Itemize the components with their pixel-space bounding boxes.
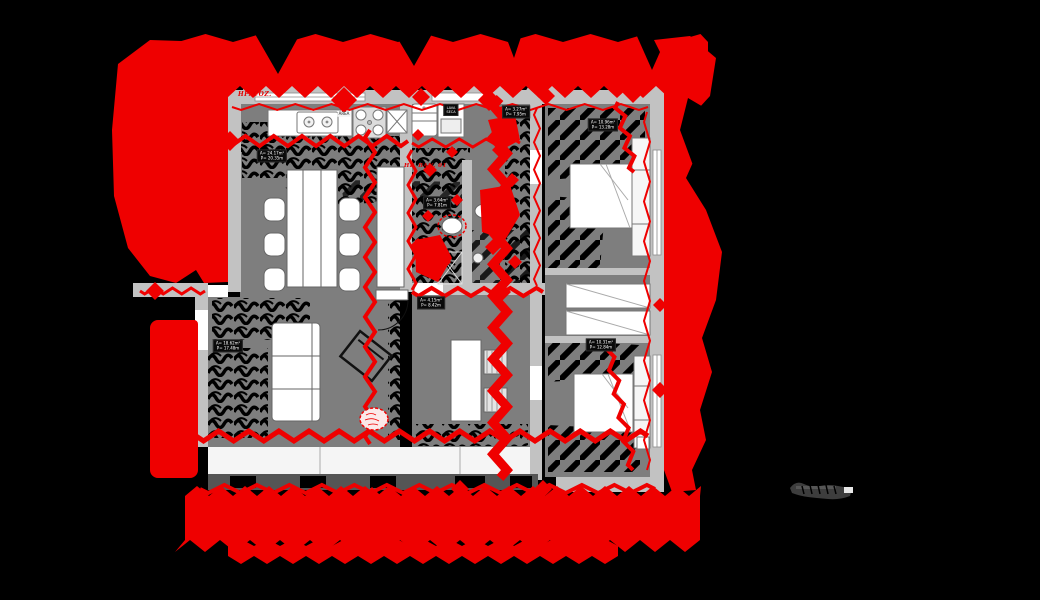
- wall-closet-top: [545, 268, 650, 275]
- dining-chair: [264, 198, 285, 221]
- dining-chair: [339, 268, 360, 291]
- room-label-service: A= 4.15m² P= 8.42m: [417, 296, 445, 309]
- study-door-leaf: [376, 290, 408, 300]
- dining-chair: [339, 198, 360, 221]
- balcony-floor: [208, 447, 530, 474]
- room-label-bedroom-1: A= 10.96m² P= 13.28m: [588, 118, 618, 131]
- appliance-label: LAVA SECA: [443, 104, 458, 116]
- floor-plan-drawing: [0, 0, 1040, 600]
- room-label-hall: A= 3.27m² P= 7.95m: [502, 105, 530, 118]
- desk: [451, 340, 481, 421]
- bed-1: [570, 164, 632, 228]
- dining-table: [287, 170, 337, 287]
- corner-box: [637, 437, 649, 449]
- wall-center-b: [462, 160, 472, 283]
- room-label-bedroom-2: A= 10.31m² P= 12.84m: [586, 338, 616, 351]
- tall-cabinet-panel: [377, 167, 404, 287]
- dining-chair: [339, 233, 360, 256]
- room-label-living: A= 18.62m² P= 17.48m: [213, 339, 243, 352]
- note-hp-coz: HP. COZ.: [238, 92, 272, 98]
- area-tag: ÁREA: [338, 112, 351, 117]
- sofa: [272, 323, 320, 421]
- dining-chair: [264, 233, 285, 256]
- red-band-bottom: [175, 486, 701, 552]
- room-label-bath: A= 3.64m² P= 7.81m: [423, 196, 451, 209]
- room-label-dining: A= 24.17m² P= 20.35m: [257, 149, 287, 162]
- red-blob-left-lower: [150, 320, 198, 478]
- laundry-tub: [442, 218, 462, 234]
- floor-plan-canvas: A= 24.17m² P= 20.35m A= 18.62m² P= 17.48…: [0, 0, 1040, 600]
- dining-chair: [264, 268, 285, 291]
- note-hp-ban-01: HP. BAN. 01: [404, 163, 447, 169]
- red-blob-left: [112, 40, 228, 283]
